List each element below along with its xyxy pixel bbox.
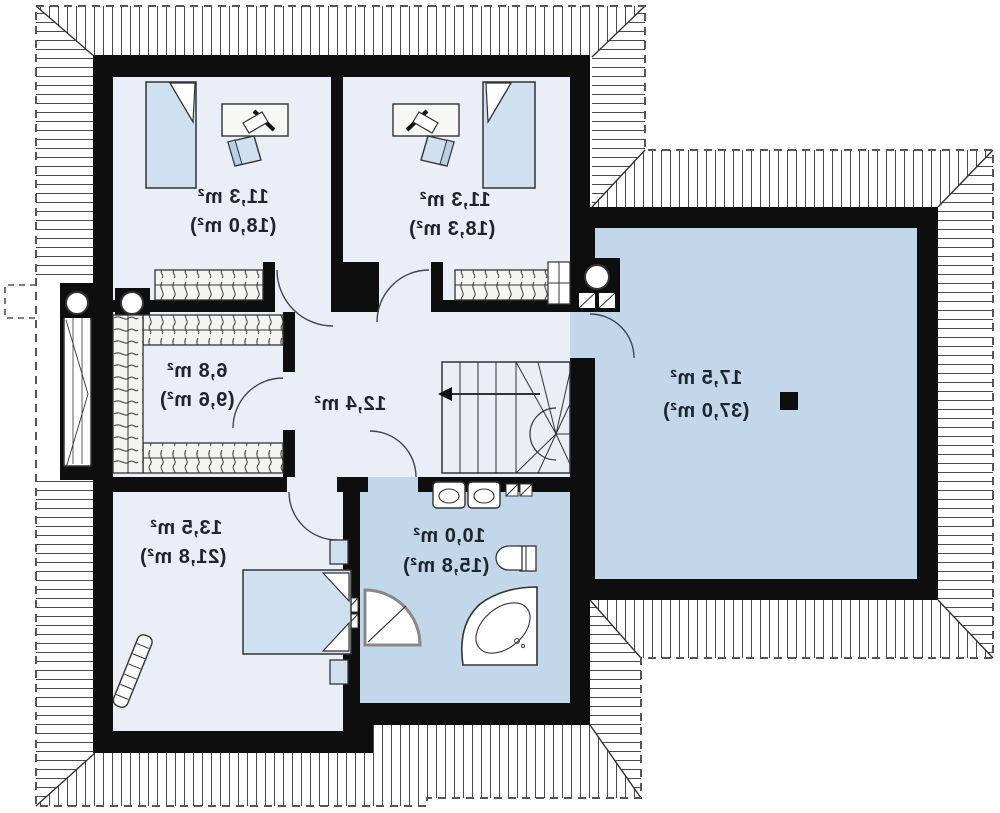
duct-icon — [548, 262, 570, 304]
room-area-label: 6,8 m² — [167, 359, 228, 383]
column-icon — [780, 392, 798, 410]
room-area-label: 11,3 m² — [197, 185, 268, 209]
column-icon — [66, 292, 88, 314]
washbasin-icon — [433, 482, 465, 508]
floor-plan: 11,3 m² (18,0 m²) 11,3 m² (18,3 m²) 6,8 … — [0, 0, 1000, 813]
nightstand-icon — [330, 540, 348, 564]
room-area-total-label: (18,3 m²) — [409, 217, 496, 241]
room-area-label: 17,5 m² — [670, 366, 742, 390]
room-area-total-label: (21,8 m²) — [140, 545, 227, 569]
room-area-label: 12,4 m² — [314, 392, 386, 416]
washbasin-icon — [468, 482, 500, 508]
wardrobe-rack-icon — [143, 443, 283, 473]
column-icon — [121, 292, 143, 314]
room-area-total-label: (9,6 m²) — [159, 388, 234, 412]
wardrobe-rack-icon — [155, 270, 263, 300]
nightstand-icon — [330, 660, 348, 684]
room-area-total-label: (15,8 m²) — [403, 554, 490, 578]
room-area-total-label: (37,0 m²) — [663, 399, 750, 423]
floor-plan-drawing — [0, 0, 1000, 813]
room-area-label: 13,5 m² — [150, 516, 222, 540]
room-area-label: 10,0 m² — [413, 524, 485, 548]
room-area-label: 11,3 m² — [419, 188, 490, 212]
room-area-total-label: (18,0 m²) — [190, 214, 277, 238]
toilet-icon — [496, 546, 536, 571]
chimney-icon — [575, 258, 620, 312]
wardrobe-rack-icon — [143, 315, 283, 345]
bay-eaves-outline — [5, 285, 36, 318]
wardrobe-rack-icon — [113, 315, 143, 473]
